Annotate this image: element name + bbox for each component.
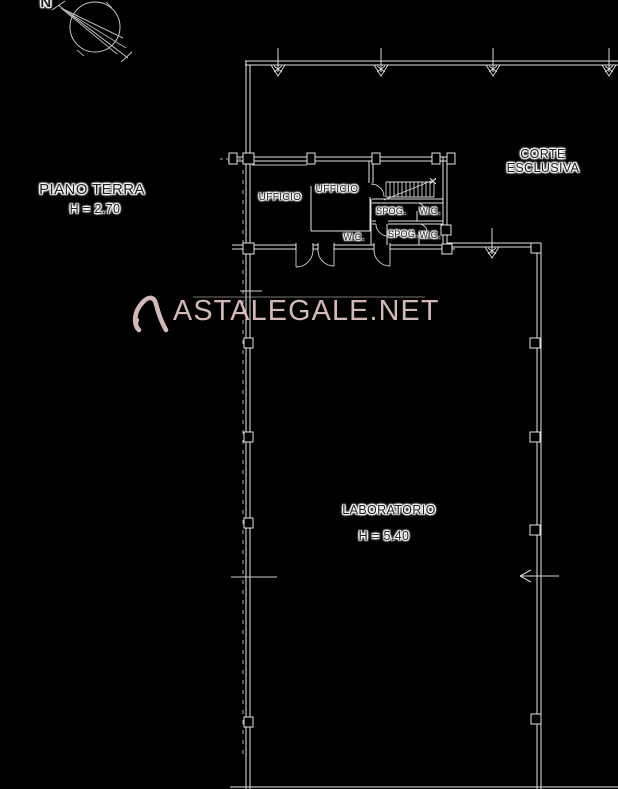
compass-rose <box>52 1 132 62</box>
spog2-door <box>376 224 388 236</box>
east-wall-pillar <box>531 714 541 724</box>
hall-door <box>374 250 390 266</box>
window-pillar <box>243 153 254 164</box>
down-arrow <box>602 48 616 76</box>
cross-markers <box>231 291 277 577</box>
room-label-office-left: UFFICIO <box>259 193 302 203</box>
block-bottom-wall <box>232 245 455 249</box>
arrows <box>271 48 616 582</box>
room-label-laboratory: LABORATORIO <box>342 504 436 517</box>
north-label: N <box>40 0 51 10</box>
courtyard-label-line1: CORTE <box>520 148 566 161</box>
west-wall-pillar <box>244 518 253 528</box>
courtyard-wall <box>447 243 541 247</box>
west-wall-pillar <box>244 432 253 442</box>
west-wall <box>246 61 250 789</box>
floor-plan-drawing <box>0 0 618 789</box>
wc-center-door <box>318 250 334 266</box>
room-label-wc-2: W.C. <box>420 231 441 240</box>
wall-junction <box>243 243 254 254</box>
north-wall <box>245 61 618 65</box>
east-wall-pillar <box>530 338 540 348</box>
wall-pillar <box>441 225 451 235</box>
east-wall-pillar <box>530 525 540 535</box>
spog-row-divider-wall <box>372 221 443 224</box>
west-wall-pillar <box>244 338 253 348</box>
down-arrow <box>486 48 500 76</box>
block-top-wall <box>228 157 455 161</box>
room-label-spog-1: SPOG. <box>376 207 406 216</box>
room-label-wc-1: W.C. <box>420 207 441 216</box>
east-wall-pillar <box>530 432 540 442</box>
west-wall-pillar <box>244 717 253 727</box>
staircase <box>384 178 436 200</box>
window-pillar <box>229 153 237 164</box>
office-left-door <box>296 250 313 267</box>
floor-height-label: H = 2.70 <box>70 203 121 216</box>
wall-pillar <box>442 244 452 254</box>
east-wall <box>537 243 541 789</box>
corner-junction <box>531 243 541 253</box>
pillars <box>229 153 541 727</box>
floor-title: PIANO TERRA <box>39 182 145 197</box>
office-center-door <box>371 184 384 197</box>
courtyard-label-line2: ESCLUSIVA <box>507 162 580 175</box>
room-label-spog-2: SPOG. <box>388 230 418 239</box>
under-stair-wall <box>372 199 443 203</box>
door-swings <box>296 184 427 267</box>
door-jambs <box>296 243 390 251</box>
floor-plan-page: ASTALEGALE.NET N PIANO TERRA H = 2.70 CO… <box>0 0 618 789</box>
window-pillar <box>432 153 440 164</box>
window-pillar <box>307 153 315 164</box>
laboratory-height-label: H = 5.40 <box>359 530 410 543</box>
window-pillar <box>447 153 455 164</box>
down-arrow <box>374 48 388 76</box>
room-label-office-center: UFFICIO <box>316 185 359 195</box>
room-label-wc-center: W.C. <box>344 233 365 242</box>
compass-circle <box>70 2 120 52</box>
window-pillar <box>372 153 380 164</box>
down-arrow <box>271 48 285 76</box>
entrance-left-arrow <box>520 570 559 582</box>
